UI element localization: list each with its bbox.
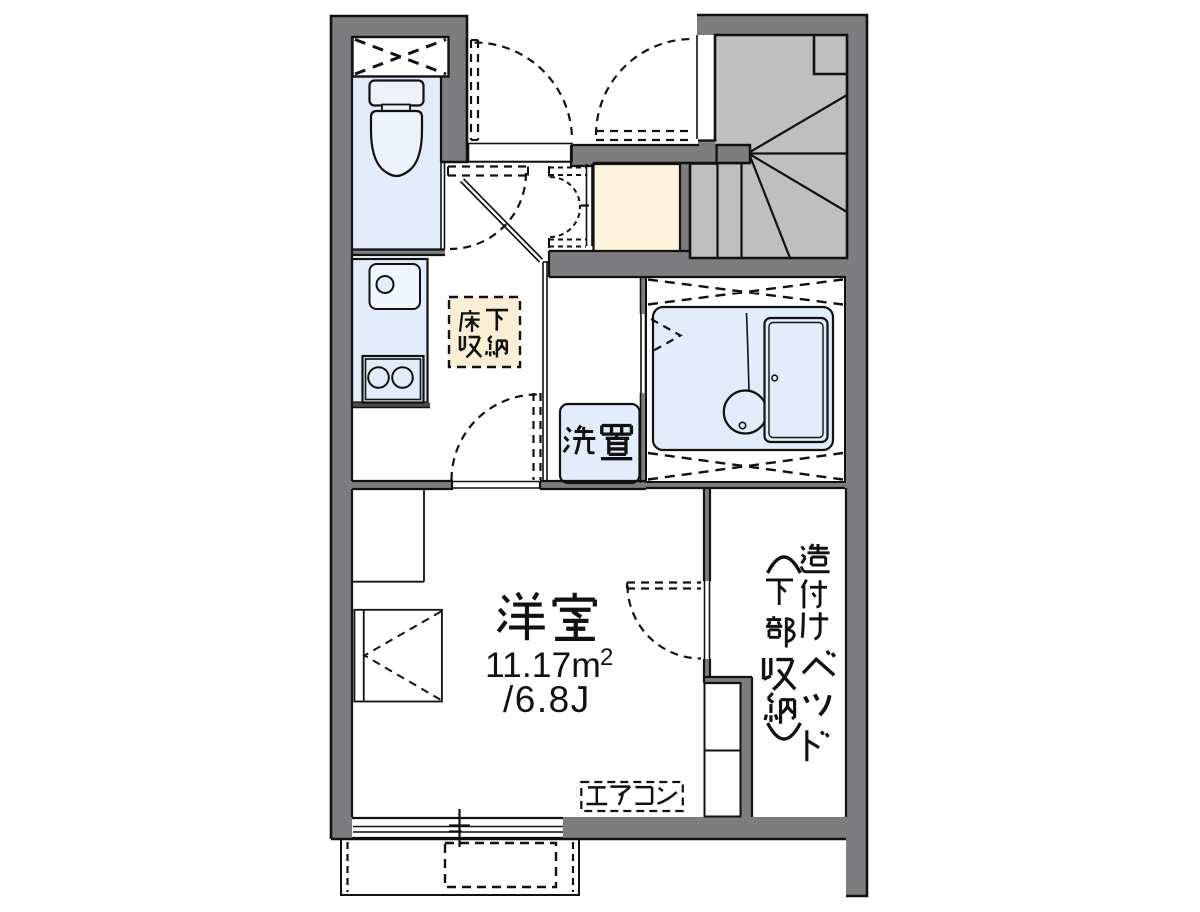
svg-text:/6.8J: /6.8J: [503, 679, 591, 720]
svg-text:2: 2: [600, 644, 613, 671]
